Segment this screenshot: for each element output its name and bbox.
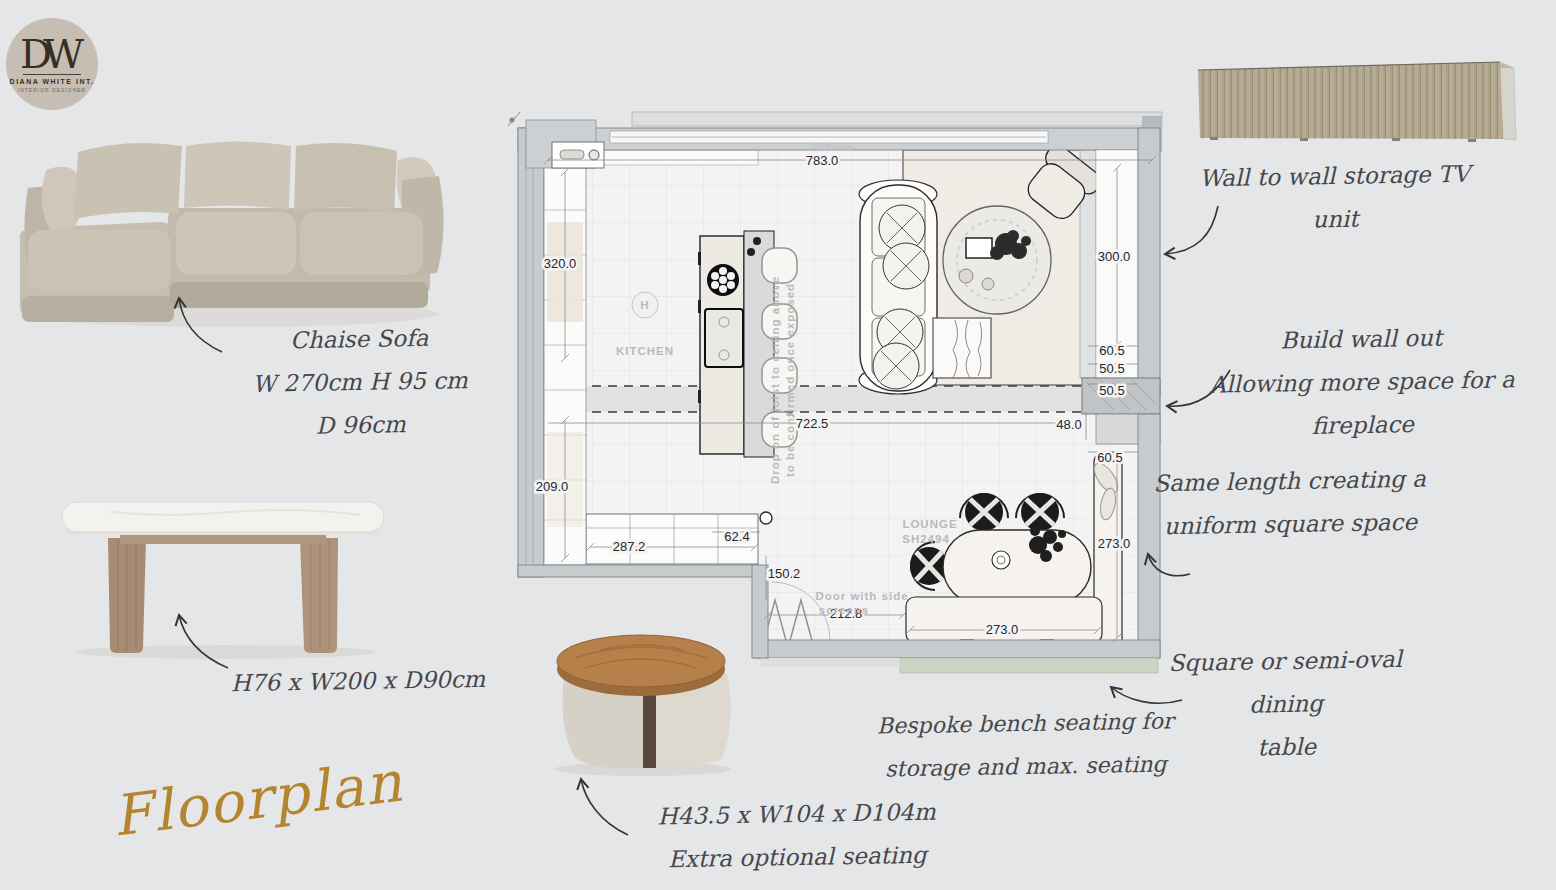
plan-door-label-2: screens bbox=[819, 604, 869, 616]
fireplace-note-line3: fireplace bbox=[1205, 401, 1520, 449]
dining-table-arrow bbox=[179, 615, 228, 668]
dim-48: 48.0 bbox=[1056, 417, 1081, 432]
dining-table-image bbox=[62, 502, 384, 659]
dim-783: 783.0 bbox=[806, 153, 839, 168]
dim-62-4: 62.4 bbox=[724, 529, 749, 544]
plan-kitchen-label: KITCHEN bbox=[616, 345, 674, 357]
coffee-table-note-extra: Extra optional seating bbox=[638, 833, 957, 882]
dim-50-5-a: 50.5 bbox=[1099, 361, 1124, 376]
sofa-note-dims1: W 270cm H 95 cm bbox=[210, 358, 511, 406]
sofa-note: Chaise Sofa W 270cm H 95 cm D 96cm bbox=[209, 315, 511, 449]
bench-note-line2: storage and max. seating bbox=[868, 742, 1184, 790]
dim-287-2: 287.2 bbox=[613, 539, 646, 554]
dim-150-2: 150.2 bbox=[768, 566, 801, 581]
tv-note-line1: Wall to wall storage TV bbox=[1184, 152, 1485, 200]
dim-273-right: 273.0 bbox=[1098, 536, 1131, 551]
coffee-table-note: H43.5 x W104 x D104m Extra optional seat… bbox=[637, 790, 956, 882]
dim-722-5: 722.5 bbox=[796, 416, 829, 431]
plan-lounge-label: LOUNGE bbox=[902, 518, 957, 530]
plan-lounge-code: SH2494 bbox=[902, 533, 950, 545]
tv-unit-image bbox=[1198, 62, 1516, 142]
dim-300: 300.0 bbox=[1098, 249, 1131, 264]
bench-note: Bespoke bench seating for storage and ma… bbox=[867, 699, 1183, 790]
coffee-table-note-dims: H43.5 x W104 x D104m bbox=[637, 790, 956, 839]
dining-table-note: H76 x W200 x D90cm bbox=[222, 658, 495, 706]
tv-note-line2: unit bbox=[1185, 195, 1486, 243]
moodboard: DW DIANA WHITE INT. INTERIOR DESIGNER bbox=[0, 0, 1556, 890]
fireplace-note: Build wall out Allowing more space for a… bbox=[1204, 315, 1520, 449]
sofa-note-dims2: D 96cm bbox=[210, 401, 511, 449]
square-space-note: Same length creating a uniform square sp… bbox=[1134, 457, 1445, 548]
plan-joist-note-2: to be confirmed once exposed bbox=[784, 283, 796, 477]
plan-door-label-1: Door with side bbox=[815, 590, 908, 602]
dim-273-bench: 273.0 bbox=[986, 622, 1019, 637]
dim-320: 320.0 bbox=[544, 256, 577, 271]
dim-209: 209.0 bbox=[536, 479, 569, 494]
dining-table-note-dims: H76 x W200 x D90cm bbox=[222, 658, 495, 706]
plan-faint-top-dim: 7830mm bbox=[810, 141, 854, 153]
sofa-image bbox=[20, 142, 444, 328]
dim-60-5-b: 60.5 bbox=[1097, 450, 1122, 465]
coffee-table-arrow bbox=[581, 779, 628, 835]
tv-note: Wall to wall storage TV unit bbox=[1184, 152, 1485, 243]
bench-note-line1: Bespoke bench seating for bbox=[867, 699, 1183, 747]
coffee-table-image bbox=[555, 635, 731, 776]
fireplace-note-line1: Build wall out bbox=[1204, 315, 1519, 363]
sofa-note-title: Chaise Sofa bbox=[209, 315, 510, 363]
dim-60-5-a: 60.5 bbox=[1099, 343, 1124, 358]
square-space-note-line2: uniform square space bbox=[1135, 500, 1446, 548]
fireplace-note-line2: Allowing more space for a bbox=[1205, 358, 1520, 406]
dim-50-5-b: 50.5 bbox=[1099, 383, 1124, 398]
plan-h-marker: H bbox=[640, 299, 649, 311]
floorplan: 7830mm 783.0 320.0 209.0 300.0 60.5 50.5… bbox=[508, 112, 1170, 673]
plan-joist-note-1: Drop on of joist to ceiling above bbox=[769, 276, 781, 484]
square-space-note-line1: Same length creating a bbox=[1134, 457, 1445, 505]
